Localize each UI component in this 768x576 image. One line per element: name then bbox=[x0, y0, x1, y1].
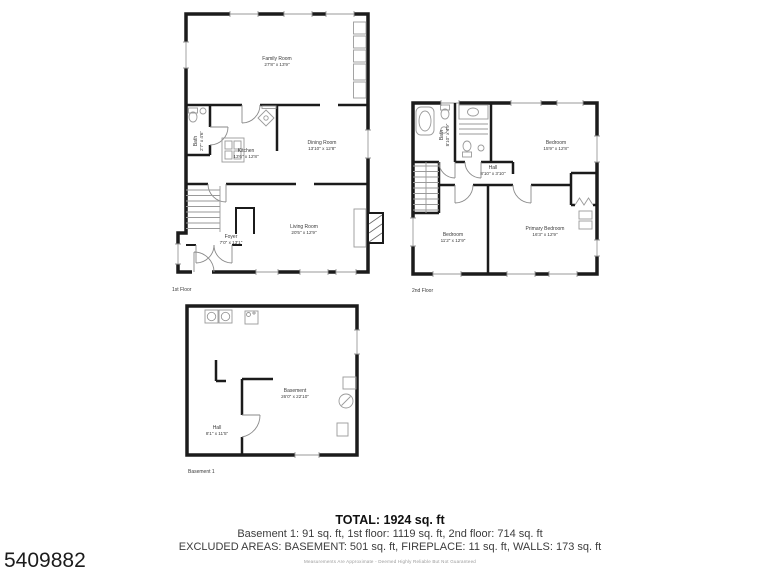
room-label-family-room: Family Room 27'8" x 13'9" bbox=[262, 56, 291, 68]
bifold-door bbox=[575, 198, 593, 205]
water-heater-icon bbox=[339, 394, 353, 408]
total-area: TOTAL: 1924 sq. ft bbox=[12, 513, 768, 527]
room-label-dining-room: Dining Room 13'10" x 12'8" bbox=[308, 140, 337, 152]
shelving bbox=[354, 22, 367, 98]
area-summary: TOTAL: 1924 sq. ft Basement 1: 91 sq. ft… bbox=[12, 513, 768, 564]
interior-walls bbox=[186, 105, 368, 245]
room-label-foyer: Foyer 7'0" x 13'1" bbox=[220, 234, 243, 246]
second-floor-caption: 2nd Floor bbox=[412, 288, 433, 294]
furnace-icon bbox=[343, 377, 356, 389]
toilet-icon bbox=[189, 108, 207, 122]
room-label-bath-1st: Bath 2'7" x 4'6" bbox=[193, 131, 205, 151]
first-floor-plan: Family Room 27'8" x 13'9" Dining Room 13… bbox=[174, 8, 406, 286]
dryer-icon bbox=[219, 310, 232, 323]
second-floor-drawing bbox=[407, 94, 605, 287]
door-arc bbox=[242, 415, 260, 437]
bathtub-icon bbox=[416, 107, 434, 135]
disclaimer: Measurements Are Approximate - Deemed Hi… bbox=[12, 559, 768, 564]
room-label-bedroom-left: Bedroom 11'2" x 12'9" bbox=[441, 232, 466, 244]
room-label-living-room: Living Room 20'5" x 12'9" bbox=[290, 224, 318, 236]
closet bbox=[236, 208, 254, 234]
vanity-sink-icon bbox=[459, 105, 488, 157]
laundry-tub-icon bbox=[245, 311, 258, 324]
stairs bbox=[413, 162, 439, 213]
listing-id: 5409882 bbox=[4, 549, 86, 573]
second-floor-plan: Bath 8'10" x 4'9" Bedroom 15'9" x 12'8" … bbox=[407, 94, 605, 287]
washer-icon bbox=[205, 310, 218, 323]
basement-drawing bbox=[179, 298, 367, 466]
stairs bbox=[186, 186, 220, 232]
fireplace-icon bbox=[354, 209, 383, 247]
room-label-kitchen: Kitchen 13'6" x 12'8" bbox=[233, 148, 258, 160]
first-floor-drawing bbox=[174, 8, 406, 286]
room-label-hall-2nd: Hall 8'10" x 3'10" bbox=[480, 165, 505, 177]
room-label-bath-2nd: Bath 8'10" x 4'9" bbox=[439, 124, 451, 147]
excluded-areas: EXCLUDED AREAS: BASEMENT: 501 sq. ft, FI… bbox=[12, 541, 768, 553]
basement-plan: Basement 26'0" x 22'10" Hall 8'1" x 11'5… bbox=[179, 298, 367, 466]
interior-walls bbox=[216, 360, 273, 455]
basement-caption: Basement 1 bbox=[188, 469, 215, 475]
room-label-bedroom-top: Bedroom 15'9" x 12'8" bbox=[543, 140, 568, 152]
closet-shelves bbox=[579, 211, 592, 229]
first-floor-caption: 1st Floor bbox=[172, 287, 191, 293]
room-label-basement: Basement 26'0" x 22'10" bbox=[281, 388, 309, 400]
room-label-hall-basement: Hall 8'1" x 11'5" bbox=[206, 425, 228, 437]
floor-areas: Basement 1: 91 sq. ft, 1st floor: 1119 s… bbox=[12, 528, 768, 540]
utility-box-icon bbox=[337, 423, 348, 436]
outer-walls bbox=[178, 14, 368, 272]
room-label-primary-bedroom: Primary Bedroom 16'3" x 12'9" bbox=[526, 226, 565, 238]
kitchen-sink-icon bbox=[258, 106, 276, 126]
